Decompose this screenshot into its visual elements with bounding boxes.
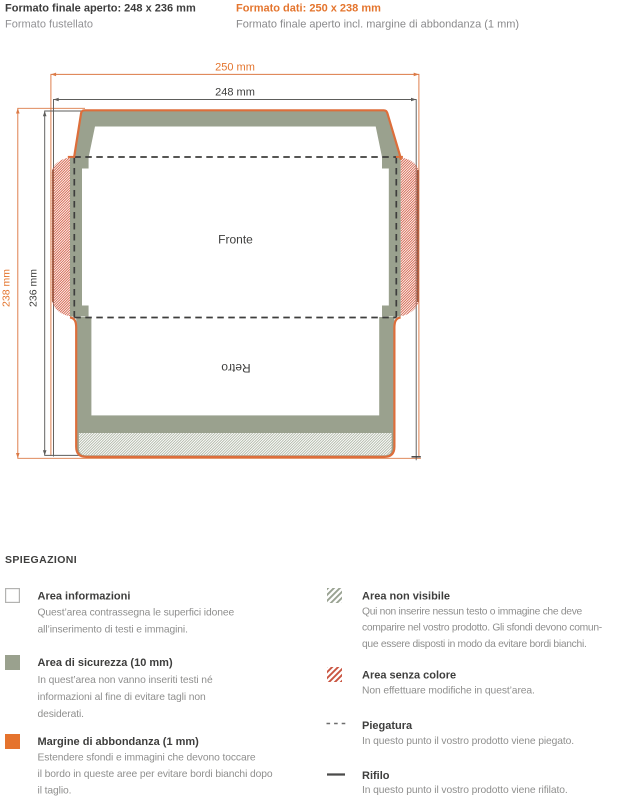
svg-text:Formato finale aperto: 248 x 2: Formato finale aperto: 248 x 236 mm — [5, 3, 196, 15]
svg-text:238 mm: 238 mm — [1, 269, 13, 307]
svg-text:Formato fustellato: Formato fustellato — [5, 19, 93, 31]
svg-text:Non effettuare modifiche in qu: Non effettuare modifiche in quest’area. — [362, 686, 535, 697]
svg-text:Qui non inserire nessun testo: Qui non inserire nessun testo o immagine… — [362, 607, 583, 618]
svg-text:Piegatura: Piegatura — [362, 720, 413, 732]
svg-text:Area informazioni: Area informazioni — [38, 591, 131, 603]
svg-text:Margine di abbondanza (1 mm): Margine di abbondanza (1 mm) — [38, 736, 200, 748]
svg-text:SPIEGAZIONI: SPIEGAZIONI — [5, 554, 77, 566]
svg-text:Estendere sfondi e immagini ch: Estendere sfondi e immagini che devono t… — [38, 753, 256, 764]
svg-text:que essere disposti in modo da: que essere disposti in modo da evitare b… — [362, 639, 587, 650]
svg-text:all’inserimento di testi e imm: all’inserimento di testi e immagini. — [38, 625, 188, 636]
svg-text:comparire nel vostro prodotto.: comparire nel vostro prodotto. Gli sfond… — [362, 623, 602, 634]
svg-text:236 mm: 236 mm — [28, 269, 40, 307]
svg-text:desiderati.: desiderati. — [38, 709, 84, 720]
svg-text:Area non visibile: Area non visibile — [362, 591, 450, 603]
svg-text:il bordo in queste aree per ev: il bordo in queste aree per evitare bord… — [38, 769, 273, 780]
svg-text:Area senza colore: Area senza colore — [362, 670, 456, 682]
svg-text:Fronte: Fronte — [218, 233, 253, 247]
svg-text:250 mm: 250 mm — [215, 62, 255, 74]
svg-text:Retro: Retro — [221, 361, 251, 375]
svg-text:informazioni al fine di evitar: informazioni al fine di evitare tagli no… — [38, 692, 207, 703]
svg-text:In quest’area non vanno inseri: In quest’area non vanno inseriti testi n… — [38, 675, 213, 686]
svg-text:Quest’area contrassegna le sup: Quest’area contrassegna le superfici ido… — [38, 608, 235, 619]
svg-text:Formato finale aperto incl. ma: Formato finale aperto incl. margine di a… — [236, 19, 519, 31]
svg-text:Formato dati: 250 x 238 mm: Formato dati: 250 x 238 mm — [236, 3, 381, 15]
svg-text:In questo punto il vostro prod: In questo punto il vostro prodotto viene… — [362, 736, 574, 747]
svg-text:il taglio.: il taglio. — [38, 786, 72, 797]
svg-text:Rifilo: Rifilo — [362, 770, 390, 782]
svg-text:248 mm: 248 mm — [215, 86, 255, 98]
svg-text:In questo punto il vostro prod: In questo punto il vostro prodotto viene… — [362, 785, 568, 796]
svg-text:Area di sicurezza (10 mm): Area di sicurezza (10 mm) — [38, 657, 173, 669]
